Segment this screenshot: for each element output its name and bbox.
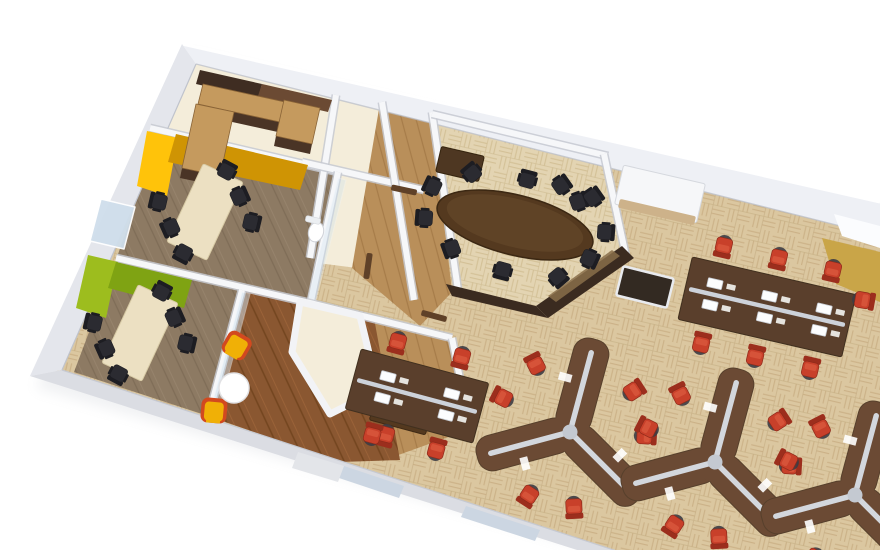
office-floorplan-3d-render	[0, 0, 880, 550]
floorplan-canvas	[0, 0, 880, 550]
coffee-table	[219, 373, 249, 403]
lounge-armchair	[200, 397, 228, 424]
kitchen-island-top	[276, 100, 320, 144]
